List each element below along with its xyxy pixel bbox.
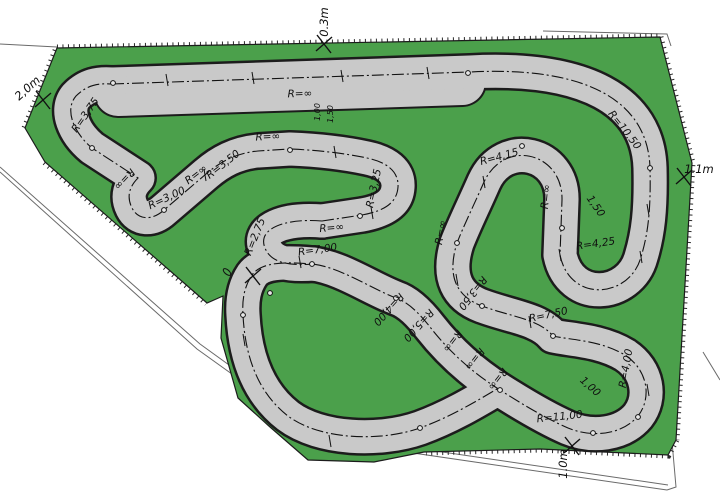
tangent-point-marker bbox=[241, 313, 246, 318]
tangent-point-marker bbox=[111, 81, 116, 86]
tangent-point-marker bbox=[480, 304, 485, 309]
kart-track-plan-page: R=∞R=10,50R=4,15R=∞R=4,25R=∞R=3,75R=∞R=3… bbox=[0, 0, 720, 498]
tangent-point-marker bbox=[520, 144, 525, 149]
tangent-point-marker bbox=[358, 214, 363, 219]
radius-label: R=∞ bbox=[319, 221, 345, 235]
tangent-point-marker bbox=[268, 291, 273, 296]
tangent-point-marker bbox=[418, 426, 423, 431]
tangent-point-marker bbox=[648, 166, 653, 171]
tangent-point-marker bbox=[162, 208, 167, 213]
strip-width-label: 1,50 bbox=[326, 105, 335, 123]
tangent-point-marker bbox=[455, 241, 460, 246]
edge-dimension-label: 1.1m bbox=[684, 162, 714, 176]
tangent-point-marker bbox=[90, 146, 95, 151]
tangent-point-marker bbox=[551, 334, 556, 339]
tangent-point-marker bbox=[560, 226, 565, 231]
strip-width-label: 1,00 bbox=[313, 103, 322, 121]
tangent-point-marker bbox=[591, 431, 596, 436]
tangent-point-marker bbox=[310, 262, 315, 267]
radius-label: R=∞ bbox=[287, 88, 312, 101]
tangent-point-marker bbox=[636, 415, 641, 420]
tangent-point-marker bbox=[288, 148, 293, 153]
boundary-line-right-stray bbox=[703, 352, 720, 380]
kart-track-plan-drawing: R=∞R=10,50R=4,15R=∞R=4,25R=∞R=3,75R=∞R=3… bbox=[0, 0, 720, 498]
boundary-line-top-left bbox=[0, 44, 57, 47]
radius-label: R=∞ bbox=[255, 130, 280, 143]
tangent-point-marker bbox=[466, 71, 471, 76]
edge-dimension-label: 1.0m bbox=[556, 449, 570, 479]
edge-dimension-label: 0.3m bbox=[317, 7, 331, 37]
